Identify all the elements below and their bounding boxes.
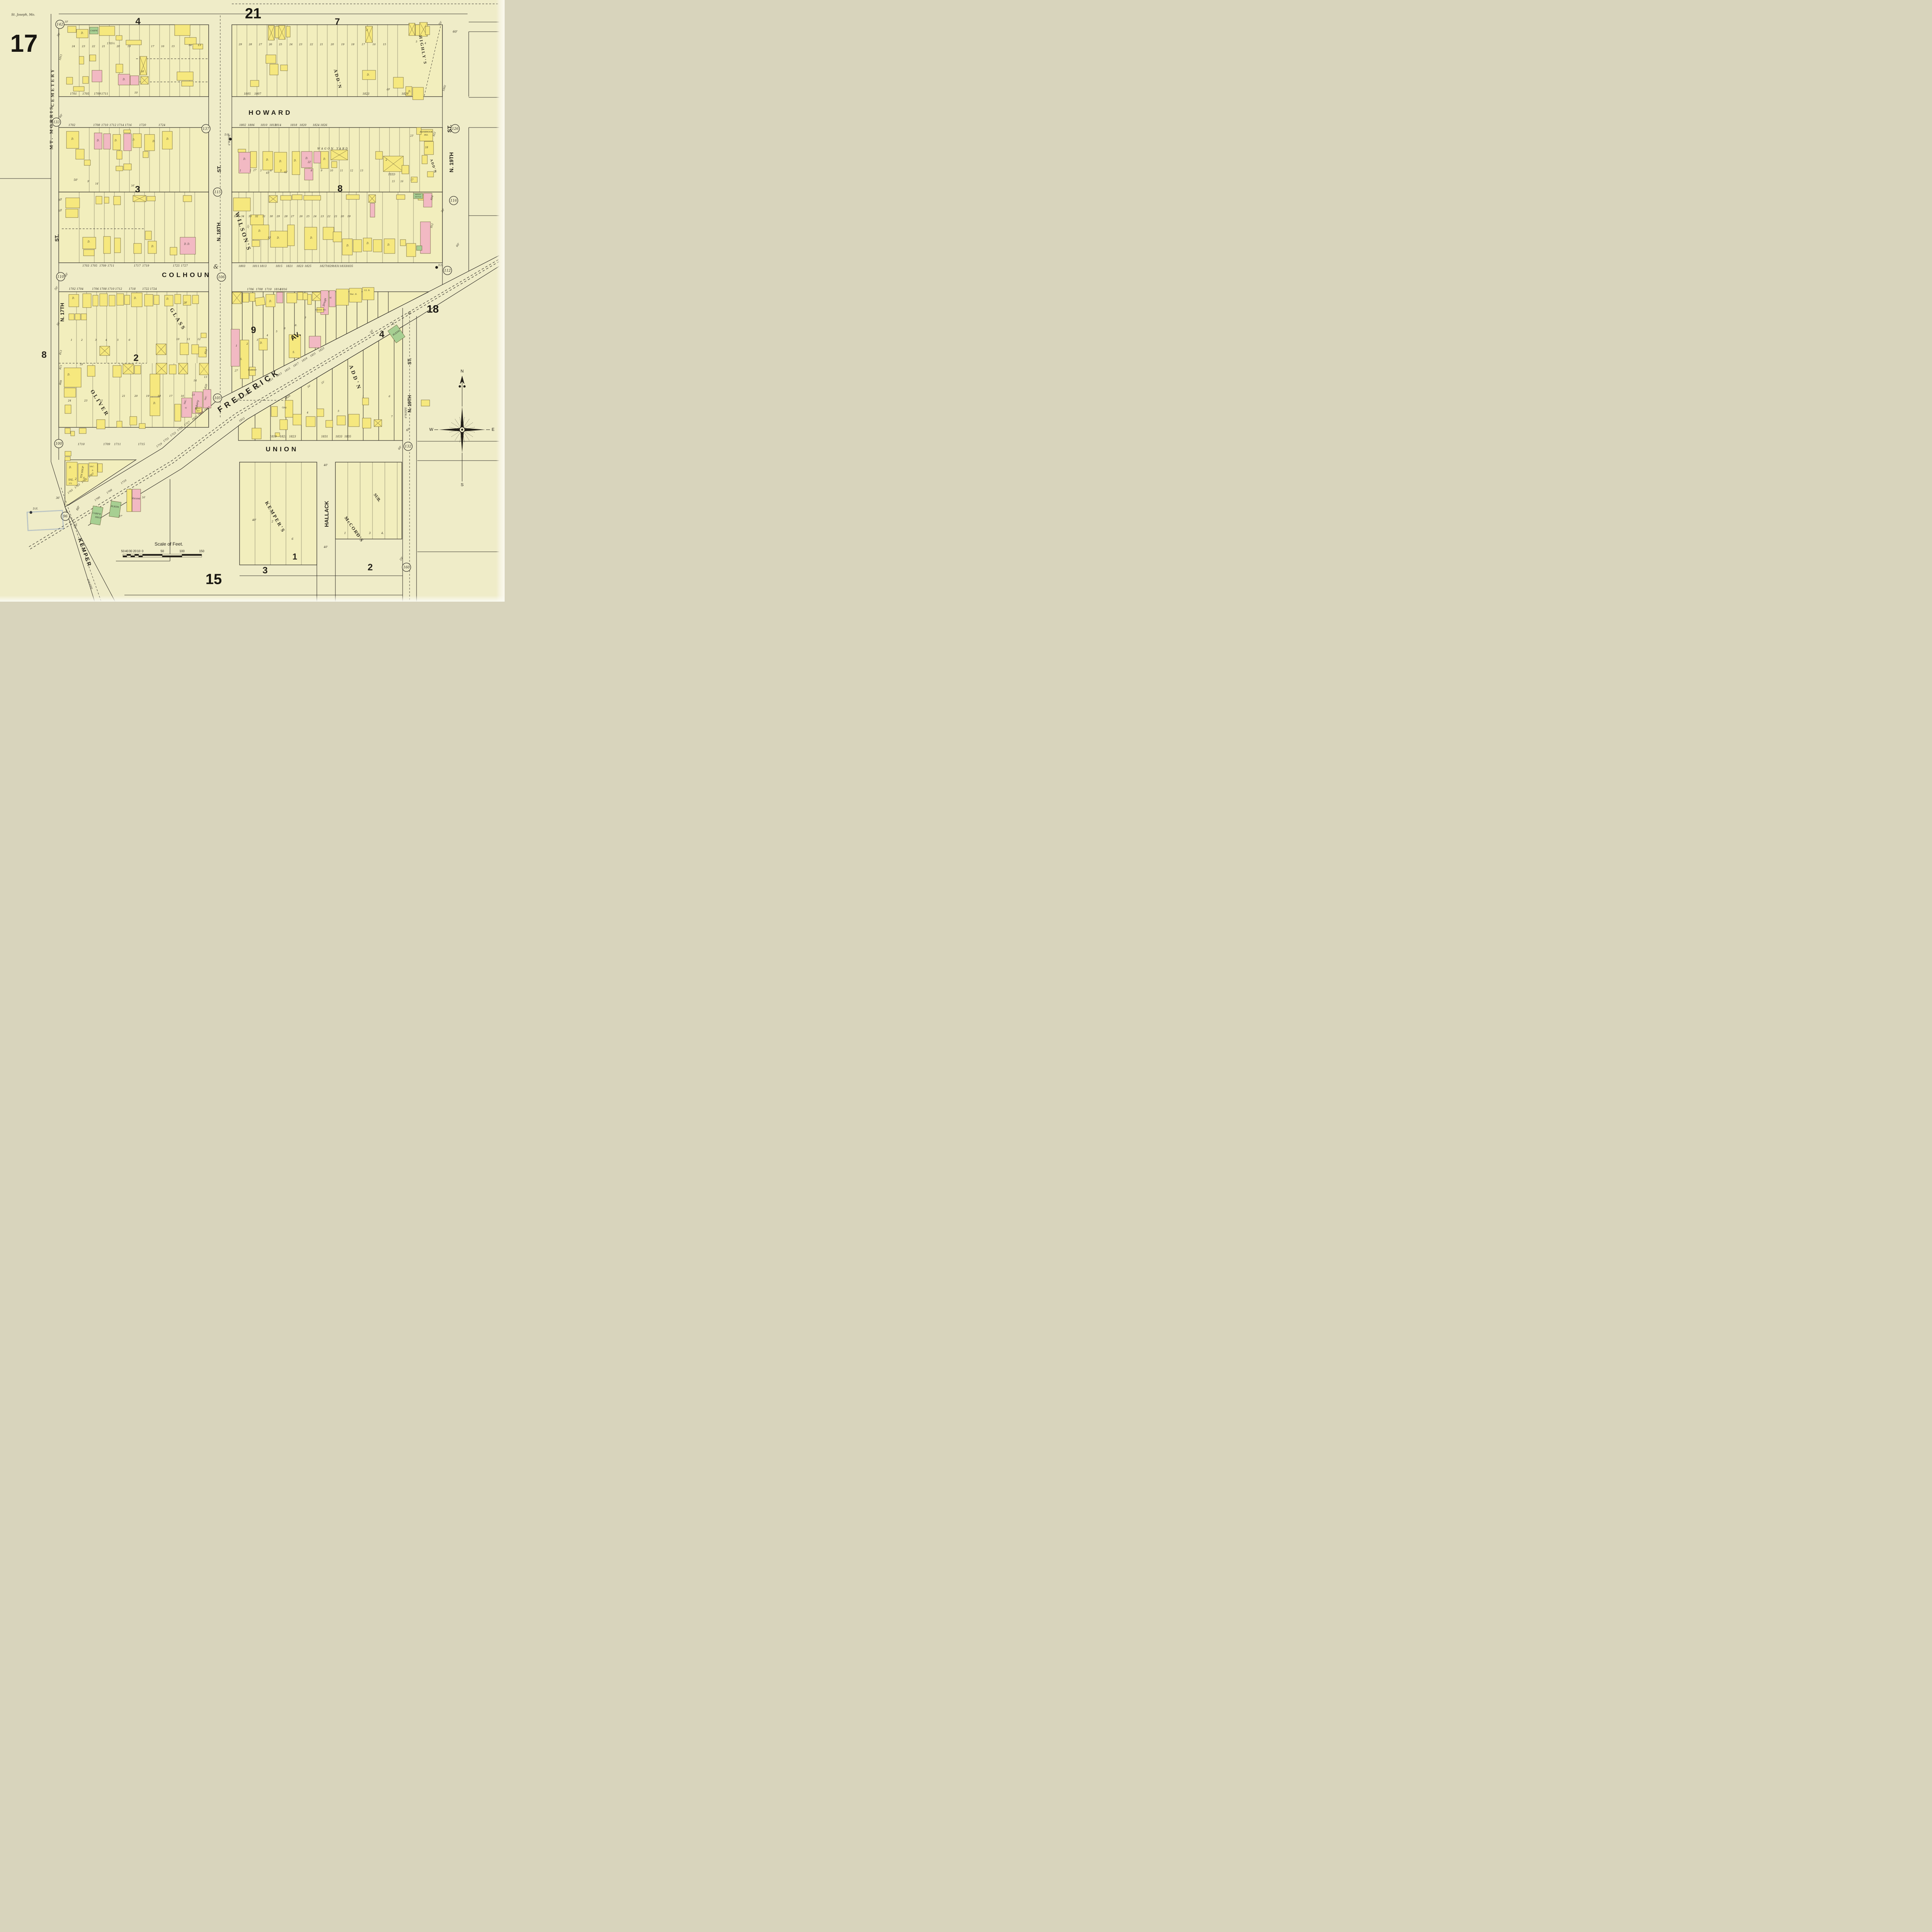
address: 1708 xyxy=(100,287,107,291)
scale-tick: 50 xyxy=(161,549,164,553)
building-footprint xyxy=(270,64,278,75)
lot-number: 25 xyxy=(279,43,282,46)
building-footprint xyxy=(266,55,276,63)
lot-number: 6 xyxy=(389,395,390,398)
lot-number: 20 xyxy=(117,45,120,48)
scale-tick: 100 xyxy=(179,549,185,553)
building-footprint xyxy=(298,292,303,300)
street-label-st: ST. xyxy=(407,358,412,364)
dwelling-label: D. xyxy=(347,245,349,247)
building-footprint xyxy=(252,428,261,439)
lot-number: 18 xyxy=(158,395,161,398)
building-label: FEED xyxy=(388,173,395,176)
address: 1710 xyxy=(101,124,108,127)
building-footprint xyxy=(337,416,345,425)
dwelling-label: D. xyxy=(294,160,297,162)
building-footprint xyxy=(145,231,151,240)
dim-label: 37' xyxy=(119,515,122,518)
lot-number: 21 xyxy=(102,45,105,48)
building-label: HO. xyxy=(424,134,429,136)
building-label: KETTLE xyxy=(415,196,421,198)
building-footprint xyxy=(71,431,75,436)
scale-tick: 20 xyxy=(133,549,137,553)
lot-number: 8 xyxy=(311,170,312,172)
building-footprint xyxy=(76,149,84,159)
building-footprint xyxy=(65,451,71,456)
address: 1803 xyxy=(238,265,245,268)
lot-number: 4 xyxy=(270,170,272,172)
dwelling-label: D. xyxy=(277,237,280,240)
dim-label: 10' xyxy=(65,21,68,24)
address: 1712 xyxy=(115,287,122,291)
building-footprint xyxy=(124,130,131,133)
building-footprint xyxy=(271,406,277,417)
building-footprint xyxy=(66,198,80,208)
dwelling-label: 12. S. xyxy=(364,289,370,292)
dwelling-label: D. D. xyxy=(184,243,190,246)
building-footprint xyxy=(124,295,130,304)
building-footprint xyxy=(113,366,121,377)
lot-number: 16 xyxy=(400,180,403,183)
building-footprint xyxy=(123,364,134,374)
lot-number: 15 xyxy=(172,45,175,48)
lot-number: 24 xyxy=(72,45,75,48)
address: 1815 xyxy=(276,265,282,268)
address: 1719 xyxy=(142,264,149,267)
building-footprint xyxy=(90,55,96,61)
dim-label: 28' xyxy=(184,302,187,304)
building-footprint xyxy=(104,236,111,253)
scale-bar: 5040302010050100150Scale of Feet. xyxy=(121,541,205,557)
building-footprint xyxy=(127,489,132,512)
building-footprint xyxy=(117,294,124,305)
circle-number: 110 xyxy=(57,275,64,279)
scale-tick: 0 xyxy=(142,549,144,553)
block-number: 2 xyxy=(367,562,372,573)
sanborn-map-sheet: 1421331371261151161101061121051009613216… xyxy=(0,0,505,602)
circle-number: 142 xyxy=(56,23,63,27)
building-footprint xyxy=(104,197,109,203)
lot-number: 20 xyxy=(331,43,334,46)
address: 1724 xyxy=(158,124,165,127)
building-footprint xyxy=(303,293,308,300)
building-footprint xyxy=(332,162,337,168)
address: 1813 xyxy=(260,265,267,268)
building-footprint xyxy=(104,134,111,149)
building-footprint xyxy=(130,417,137,425)
circle-number: 116 xyxy=(450,199,457,203)
compass-label: E xyxy=(492,427,494,432)
building-label: SMOKE HO. xyxy=(315,310,326,311)
circle-number: 105 xyxy=(214,396,221,400)
building-footprint xyxy=(349,414,359,427)
lot-number: 6 xyxy=(129,338,130,342)
street-label-st: ST. xyxy=(54,235,60,242)
street-label-st: ST. xyxy=(216,165,222,173)
building-footprint xyxy=(304,196,321,200)
dim-label: 32' xyxy=(267,237,271,240)
lot-number: 9 xyxy=(304,316,306,319)
dwelling-label: D. xyxy=(269,300,272,303)
scale-tick: 150 xyxy=(199,549,204,553)
address: 1720 xyxy=(139,124,146,127)
dim-label: 40' xyxy=(324,546,328,549)
lot-number: 3 xyxy=(257,338,258,342)
address: 1705 xyxy=(82,92,89,95)
circle-number: 132 xyxy=(405,445,411,449)
lot-number: 32 xyxy=(255,215,258,218)
building-footprint xyxy=(99,26,115,36)
lot-number: 23 xyxy=(84,399,87,402)
dim-label: 42' xyxy=(284,171,287,174)
building-footprint xyxy=(326,420,333,427)
building-label: BST. xyxy=(196,410,200,412)
building-footprint xyxy=(233,198,250,211)
dim-label: 19' xyxy=(80,364,83,366)
building-footprint xyxy=(180,237,196,254)
street-label-n19th: N. 19TH xyxy=(448,152,454,172)
dim-label: 45' xyxy=(266,172,269,175)
building-footprint xyxy=(64,388,76,397)
building-footprint xyxy=(165,295,173,306)
building-footprint xyxy=(113,134,121,150)
lot-number: 20 xyxy=(341,215,344,218)
building-footprint xyxy=(156,344,166,355)
building-footprint xyxy=(64,368,81,387)
building-footprint xyxy=(323,227,334,240)
building-footprint xyxy=(139,423,145,429)
street-label-colhoun: COLHOUN xyxy=(162,271,211,279)
building-footprint xyxy=(96,196,102,204)
lot-number: 22 xyxy=(310,43,313,46)
block-outline xyxy=(335,462,402,539)
street-label-n19th: N. 19TH xyxy=(407,395,412,413)
lot-number: 29 xyxy=(277,215,280,218)
building-label: Cobbler xyxy=(248,369,257,371)
building-footprint xyxy=(170,247,177,255)
address: 1833 xyxy=(335,435,342,438)
adjacent-sheet-top: 21 xyxy=(245,6,261,22)
lot-number: 20 xyxy=(134,395,138,398)
building-footprint xyxy=(79,56,84,64)
circle-number: 115 xyxy=(214,190,221,194)
circle-marker-106: 106 xyxy=(217,273,226,281)
address: 1821 xyxy=(286,265,293,268)
lot-number: 5 xyxy=(416,40,417,43)
address: 1725 xyxy=(173,264,180,267)
lot-number: 29 xyxy=(239,43,242,46)
circle-marker-132: 132 xyxy=(404,442,412,451)
building-footprint xyxy=(180,343,189,355)
lot-number: 2 xyxy=(357,532,358,535)
block-number: 2 xyxy=(133,353,138,364)
circle-marker-112: 112 xyxy=(443,266,452,275)
lot-number: 14 xyxy=(194,379,197,382)
street-label-howard: HOWARD xyxy=(248,109,292,117)
adjacent-sheet-right: 18 xyxy=(427,303,439,315)
building-footprint xyxy=(238,149,246,152)
address: 1831 xyxy=(333,265,340,268)
dwelling-label: D. xyxy=(167,298,169,301)
address: 1814 xyxy=(274,124,281,127)
address: 1715 xyxy=(138,443,145,446)
lot-number: 1 xyxy=(236,344,237,347)
dim-label: 27' xyxy=(253,169,257,172)
building-footprint xyxy=(83,294,91,308)
building-footprint xyxy=(69,294,79,307)
building-footprint xyxy=(250,80,259,87)
hydrant-label: D.H. xyxy=(438,264,444,267)
dim-label: 23' xyxy=(410,135,413,138)
lot-number: 21 xyxy=(122,395,125,398)
map-canvas: 1421331371261151161101061121051009613216… xyxy=(0,0,505,602)
lot-number: 4 xyxy=(425,42,426,45)
lot-number: 15 xyxy=(383,43,386,46)
lot-number: 5 xyxy=(117,338,119,342)
lot-number: 12 xyxy=(350,170,353,172)
building-footprint xyxy=(66,209,78,218)
lot-number: 11 xyxy=(340,170,343,172)
building-footprint xyxy=(175,294,181,304)
building-footprint xyxy=(69,314,74,320)
address: 1835 xyxy=(344,435,351,438)
address: 1823 xyxy=(362,92,369,95)
lot-number: 19 xyxy=(341,43,344,46)
building-footprint xyxy=(150,397,160,416)
building-footprint xyxy=(281,196,291,200)
building-footprint xyxy=(169,365,176,374)
building-footprint xyxy=(93,295,98,306)
lot-number: 25 xyxy=(306,215,310,218)
building-footprint xyxy=(425,26,430,35)
block-number: 8 xyxy=(337,184,342,194)
building-footprint xyxy=(97,420,105,429)
hydrant-dot xyxy=(435,266,438,269)
lot-number: 1 xyxy=(362,395,364,398)
lot-number: 3 xyxy=(260,170,262,172)
circle-marker-110: 110 xyxy=(56,272,65,281)
building-footprint xyxy=(131,293,142,307)
lot-number: 11 xyxy=(187,338,190,341)
dwelling-label: D. xyxy=(306,157,308,160)
lot-number: 23 xyxy=(82,45,85,48)
circle-marker-116: 116 xyxy=(449,196,458,205)
address: 1712 xyxy=(109,124,116,127)
building-footprint xyxy=(231,329,240,366)
address: 1706 xyxy=(92,287,99,291)
lot-number: 2 xyxy=(250,170,251,172)
hydrant-label: D.H. xyxy=(33,508,38,510)
address: 1820 xyxy=(299,124,306,127)
street-label-hallack: HALLACK xyxy=(323,501,330,527)
dwelling-label: D. xyxy=(115,139,117,142)
address: 1711 xyxy=(101,92,108,95)
building-footprint xyxy=(124,164,131,170)
lot-number: 5 xyxy=(280,170,282,172)
block-number: 4 xyxy=(379,329,384,340)
lot-number: 17 xyxy=(410,179,413,182)
dwelling-label: D. xyxy=(367,74,370,77)
building-footprint xyxy=(154,295,159,304)
compass-rose: NSWE xyxy=(429,369,495,487)
building-label: OVEN xyxy=(196,408,201,410)
lot-number: 15 xyxy=(192,393,195,396)
building-footprint xyxy=(68,26,76,32)
building-footprint xyxy=(147,196,155,201)
lot-number: 28 xyxy=(249,43,252,46)
address: 1802 xyxy=(239,124,246,127)
lot-number: 19 xyxy=(146,395,149,398)
lot-number: 17 xyxy=(151,45,154,48)
address: 1717 xyxy=(134,264,141,267)
dwelling-label: D. xyxy=(153,140,155,143)
building-footprint xyxy=(314,151,321,163)
scale-tick: 10 xyxy=(137,549,141,553)
dwelling-label: D. xyxy=(133,139,135,141)
dwelling-label: D. xyxy=(167,138,169,141)
address: 1827 xyxy=(320,265,327,268)
address: 1703 xyxy=(82,264,89,267)
address: 1710 xyxy=(107,287,114,291)
building-label: ASHBROOK xyxy=(420,131,433,133)
street-label-amp: & xyxy=(213,263,218,270)
circle-number: 100 xyxy=(55,442,62,446)
address: 1716 xyxy=(125,124,132,127)
building-label: RENDG xyxy=(415,194,421,196)
address: 1724 xyxy=(150,287,157,291)
circle-number: 137 xyxy=(202,127,209,131)
lot-number: 4. xyxy=(381,532,384,535)
block-number: 8 xyxy=(41,350,46,361)
lot-number: 27 xyxy=(259,43,262,46)
dwelling-label: D. xyxy=(279,160,282,163)
building-footprint xyxy=(370,203,375,217)
street-label-union: UNION xyxy=(266,446,299,453)
address: 1711 xyxy=(107,264,114,267)
lot-number: 2 xyxy=(81,338,83,342)
building-footprint xyxy=(346,195,359,199)
dwelling-label: D. xyxy=(260,342,263,345)
building-footprint xyxy=(199,363,209,375)
lot-number: 24 xyxy=(313,215,316,218)
address: 1835 xyxy=(346,265,353,268)
circle-number: 96 xyxy=(63,515,68,519)
address: 1806 xyxy=(248,124,255,127)
building-footprint xyxy=(75,314,80,320)
address: 1710 xyxy=(78,443,85,446)
block-number: 3 xyxy=(262,565,267,576)
dwelling-label: D. xyxy=(243,158,246,161)
scale-title: Scale of Feet. xyxy=(155,541,183,547)
lot-number: 33 xyxy=(248,215,252,218)
lot-number: 19 xyxy=(347,215,350,218)
building-footprint xyxy=(83,77,88,83)
building-footprint xyxy=(277,292,283,303)
dim-label: 40' xyxy=(324,464,328,467)
block-outline xyxy=(240,462,317,565)
lot-number: 5 xyxy=(276,330,277,333)
building-footprint xyxy=(309,336,321,348)
lot-number: 7 xyxy=(291,337,292,340)
dwelling-label: D. xyxy=(88,241,90,243)
lot-number: 18 xyxy=(351,43,354,46)
address: 1701 xyxy=(70,92,77,95)
building-footprint xyxy=(402,165,409,174)
building-footprint xyxy=(133,196,146,202)
building-footprint xyxy=(175,25,190,36)
building-footprint xyxy=(255,297,265,306)
dim-label: 22' xyxy=(308,161,311,164)
circle-number: 106 xyxy=(218,276,224,279)
circle-marker-160: 160 xyxy=(402,563,411,571)
building-footprint xyxy=(417,246,422,250)
dim-label: 27' xyxy=(235,370,238,372)
circle-number: 160 xyxy=(403,566,410,570)
building-label: Vacant xyxy=(132,497,141,500)
building-footprint xyxy=(201,333,206,338)
lot-number: 3 xyxy=(369,532,371,535)
building-footprint xyxy=(286,26,290,37)
address: 1823 xyxy=(296,265,303,268)
building-footprint xyxy=(250,151,257,168)
address: 1829 xyxy=(326,265,333,268)
lot-number: 12 xyxy=(197,338,201,341)
building-label: CARPR xyxy=(90,30,97,32)
area-label-cemetery: CEMETERY xyxy=(50,68,56,107)
building-footprint xyxy=(336,289,349,305)
lot-number: 23 xyxy=(299,43,302,46)
building-footprint xyxy=(100,294,107,306)
dim-label: 36' xyxy=(56,497,60,500)
building-footprint xyxy=(269,196,277,202)
building-footprint xyxy=(421,400,430,406)
building-footprint xyxy=(369,195,376,202)
address: 1727 xyxy=(181,264,188,267)
building-footprint xyxy=(293,414,301,425)
dwelling-label: D. xyxy=(68,374,70,376)
building-footprint xyxy=(373,240,382,252)
circle-marker-105: 105 xyxy=(213,394,222,402)
building-footprint xyxy=(406,243,416,257)
street-label-st: ST. xyxy=(446,125,452,133)
circle-marker-137: 137 xyxy=(202,124,210,133)
address: 1826 xyxy=(320,124,327,127)
building-footprint xyxy=(252,240,260,247)
building-label: R. xyxy=(392,322,395,325)
dwelling-label: D. xyxy=(367,242,369,245)
building-footprint xyxy=(114,196,121,205)
address: 1708 xyxy=(93,124,100,127)
address: 1825 xyxy=(304,265,311,268)
address: 1706 xyxy=(247,288,254,291)
building-label: 2 xyxy=(386,158,387,162)
lot-number: 24 xyxy=(68,399,71,402)
address: 1718 xyxy=(129,287,136,291)
building-footprint xyxy=(117,151,122,159)
address: 1829 xyxy=(401,92,408,95)
lot-number: 13 xyxy=(360,170,363,172)
building-footprint xyxy=(400,240,406,246)
building-footprint xyxy=(84,160,90,165)
building-footprint xyxy=(280,420,287,430)
building-footprint xyxy=(81,314,87,320)
lot-number: 3 xyxy=(95,338,97,342)
pipe-label: 6"W.PIPE xyxy=(405,407,408,418)
lot-number: 21 xyxy=(334,215,337,218)
building-footprint xyxy=(132,489,141,512)
building-footprint xyxy=(117,421,122,427)
address: 1833 xyxy=(340,265,347,268)
